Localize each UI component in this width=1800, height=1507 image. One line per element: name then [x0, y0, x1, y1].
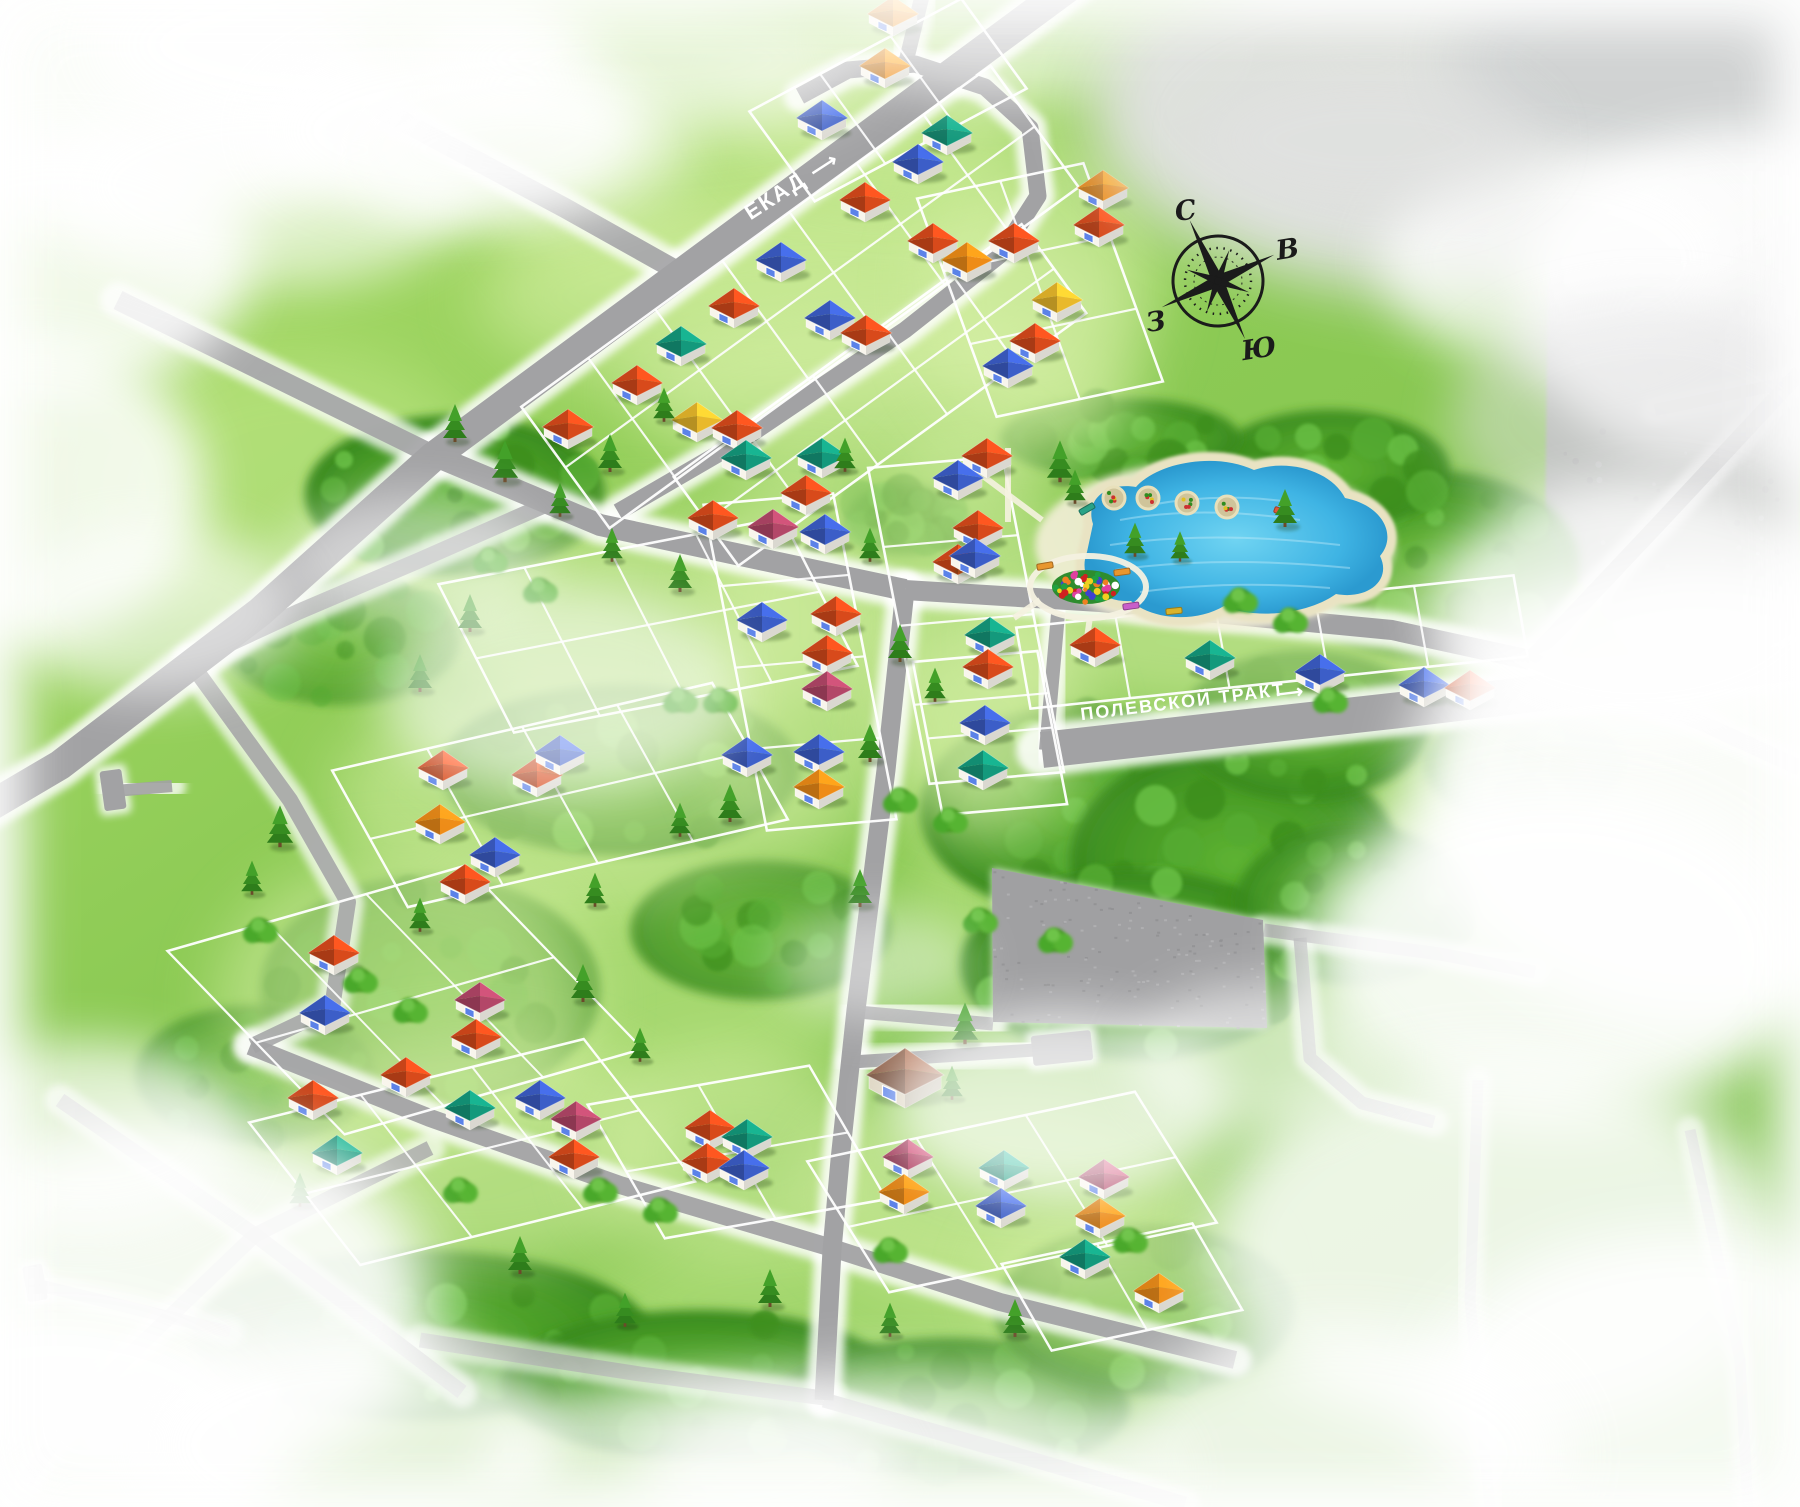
map-canvas: ЕКАД ⟶ ПОЛЕВСКОЙ ТРАКТ ⟶ С В: [0, 0, 1800, 1507]
shore-planter: [1176, 492, 1198, 514]
cottage-village-site-plan: ЕКАД ⟶ ПОЛЕВСКОЙ ТРАКТ ⟶ С В: [0, 0, 1800, 1507]
compass-east-label: В: [1273, 233, 1301, 267]
cloud: [0, 525, 300, 695]
cloud: [1200, 65, 1540, 215]
cloud: [1130, 985, 1390, 1135]
cloud: [775, 910, 975, 1020]
polevskoy-direction-arrow: ⟶: [1275, 681, 1307, 705]
cloud: [285, 495, 545, 625]
cloud: [350, 75, 690, 225]
bench: [1166, 607, 1183, 615]
compass-south-label: Ю: [1238, 331, 1278, 367]
